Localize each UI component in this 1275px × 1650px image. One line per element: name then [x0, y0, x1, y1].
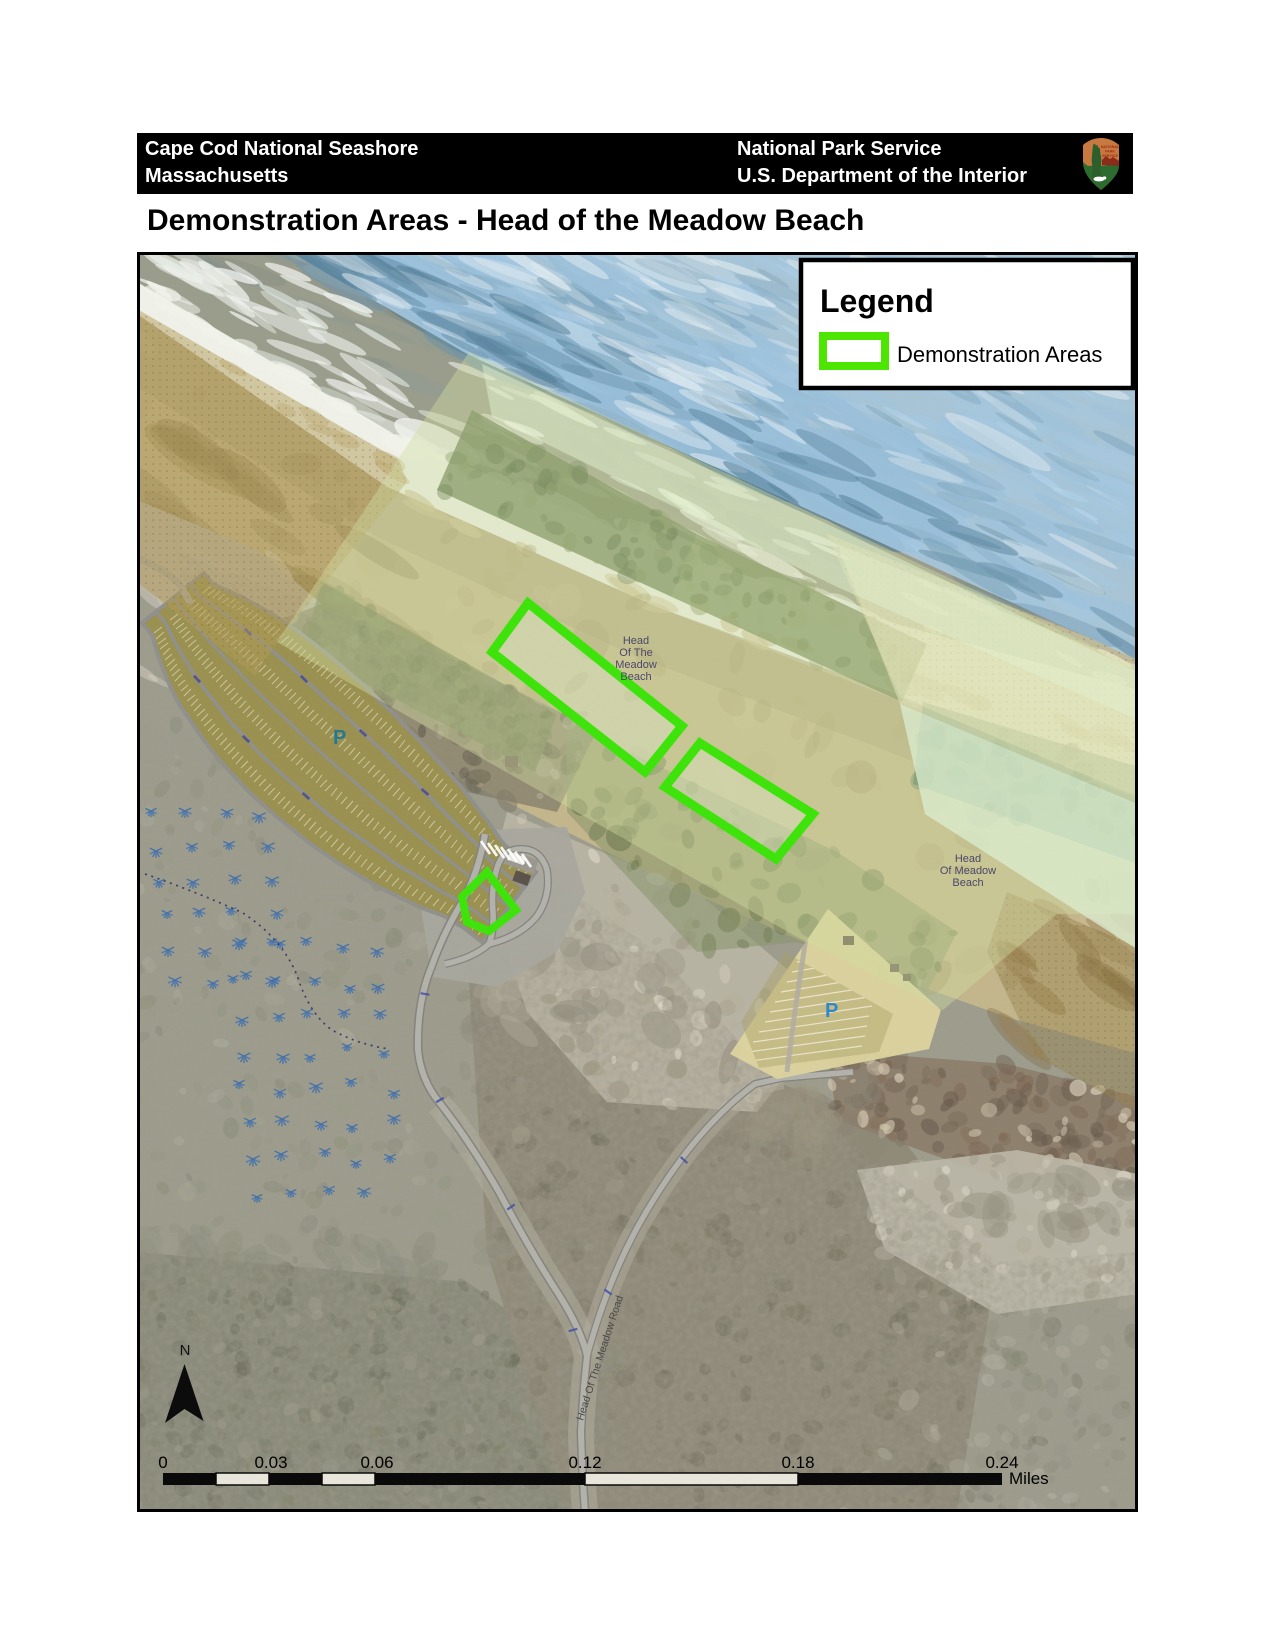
svg-text:Meadow: Meadow: [615, 659, 657, 671]
svg-text:Head: Head: [955, 853, 981, 865]
svg-text:Beach: Beach: [620, 671, 651, 683]
svg-text:Beach: Beach: [952, 877, 983, 889]
svg-text:0.12: 0.12: [568, 1453, 601, 1472]
svg-text:N: N: [180, 1342, 191, 1359]
svg-text:Head: Head: [623, 635, 649, 647]
svg-text:Of Meadow: Of Meadow: [940, 865, 996, 877]
svg-text:Demonstration Areas: Demonstration Areas: [897, 342, 1102, 367]
svg-text:NATIONAL: NATIONAL: [1101, 145, 1120, 149]
svg-text:0.03: 0.03: [254, 1453, 287, 1472]
svg-text:SERVICE: SERVICE: [1102, 154, 1118, 158]
svg-text:PARK: PARK: [1105, 150, 1115, 154]
svg-text:Miles: Miles: [1009, 1469, 1049, 1488]
svg-text:0: 0: [158, 1453, 167, 1472]
svg-text:Of The: Of The: [619, 647, 652, 659]
svg-text:Legend: Legend: [820, 283, 934, 319]
svg-text:0.06: 0.06: [360, 1453, 393, 1472]
svg-text:0.18: 0.18: [781, 1453, 814, 1472]
